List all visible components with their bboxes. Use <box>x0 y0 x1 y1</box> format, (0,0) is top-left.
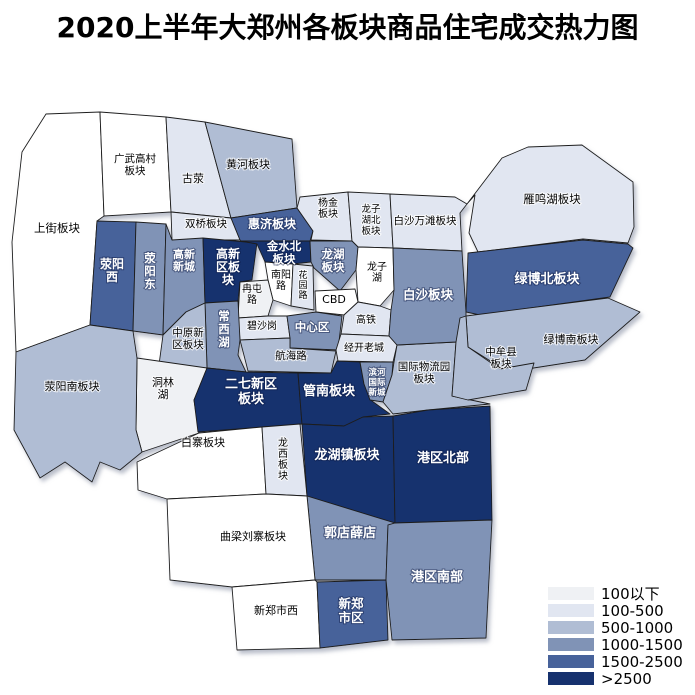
region-label: 新郑市区 <box>338 596 364 625</box>
region-label: 碧沙岗 <box>247 320 277 332</box>
legend-row: 100-500 <box>548 602 683 619</box>
legend-label: 500-1000 <box>601 619 673 637</box>
region-label: 航海路 <box>275 349 307 362</box>
region-label: 双桥板块 <box>185 217 227 230</box>
legend-swatch <box>548 604 594 617</box>
legend-row: 500-1000 <box>548 619 683 636</box>
region-label: 管南板块 <box>303 383 356 399</box>
region-label: 上街板块 <box>34 221 80 235</box>
infographic-root: 2020上半年大郑州各板块商品住宅成交热力图 上街板块广武高村板块古荥黄河板块双… <box>0 0 695 695</box>
region-label: 经开老城 <box>344 341 384 354</box>
region-label: 黄河板块 <box>226 157 270 171</box>
region-label: 郭店薛店 <box>324 525 376 541</box>
region-label: 新郑市西 <box>254 603 298 617</box>
region-label: 龙湖板块 <box>321 247 345 274</box>
legend-label: 1000-1500 <box>601 636 683 654</box>
region-label: 惠济板块 <box>248 216 297 231</box>
region-label: 荥阳东 <box>144 251 156 291</box>
region-label: 曲梁刘寨板块 <box>220 529 286 543</box>
legend-label: 100-500 <box>601 602 664 620</box>
region-label: 龙西板块 <box>278 436 288 482</box>
region-label: 荥阳南板块 <box>45 379 100 393</box>
legend: 100以下100-500500-10001000-15001500-2500>2… <box>548 585 683 687</box>
legend-row: 100以下 <box>548 585 683 602</box>
legend-label: >2500 <box>601 670 652 688</box>
region-label: 白沙万滩板块 <box>394 214 457 227</box>
region-label: 港区南部 <box>411 569 463 585</box>
region-label: 白沙板块 <box>403 287 454 302</box>
region-label: 古荥 <box>182 171 204 185</box>
legend-swatch <box>548 655 594 668</box>
region-label: 花园路 <box>298 269 307 301</box>
region-label: 龙子湖北板块 <box>361 203 381 237</box>
region-label: 龙湖镇板块 <box>314 447 380 463</box>
legend-swatch <box>548 621 594 634</box>
region-label: CBD <box>322 293 346 306</box>
legend-row: >2500 <box>548 670 683 687</box>
region-label: 绿博南板块 <box>544 332 599 346</box>
region-label: 绿博北板块 <box>514 271 580 287</box>
region-label: 雁鸣湖板块 <box>523 192 581 206</box>
region-label: 港区北部 <box>417 450 469 466</box>
legend-swatch <box>548 638 594 651</box>
legend-label: 1500-2500 <box>601 653 683 671</box>
legend-swatch <box>548 587 594 600</box>
legend-row: 1000-1500 <box>548 636 683 653</box>
legend-row: 1500-2500 <box>548 653 683 670</box>
region-label: 滨河国际新城 <box>368 367 386 398</box>
region-label: 中原新区板块 <box>172 326 204 351</box>
region-label: 白寨板块 <box>181 435 225 449</box>
region-label: 中心区 <box>295 320 330 334</box>
region-label: 高铁 <box>356 313 376 326</box>
region-label: 高新新城 <box>173 247 195 273</box>
region-label: 常西湖 <box>218 309 230 349</box>
region-shape <box>14 325 142 482</box>
legend-swatch <box>548 672 594 685</box>
region-label: 杨金板块 <box>318 196 338 220</box>
